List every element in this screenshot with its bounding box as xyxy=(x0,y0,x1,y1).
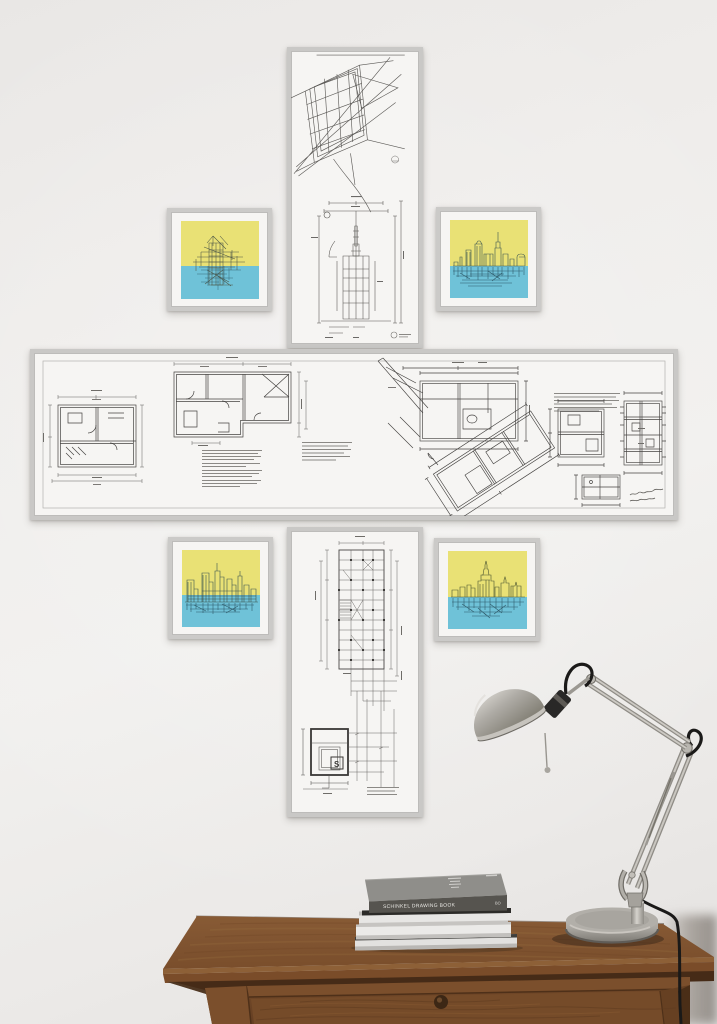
svg-text:BO: BO xyxy=(495,900,501,905)
svg-text:SCHINKEL DRAWING BOOK: SCHINKEL DRAWING BOOK xyxy=(383,902,456,910)
svg-text:S: S xyxy=(334,760,340,769)
